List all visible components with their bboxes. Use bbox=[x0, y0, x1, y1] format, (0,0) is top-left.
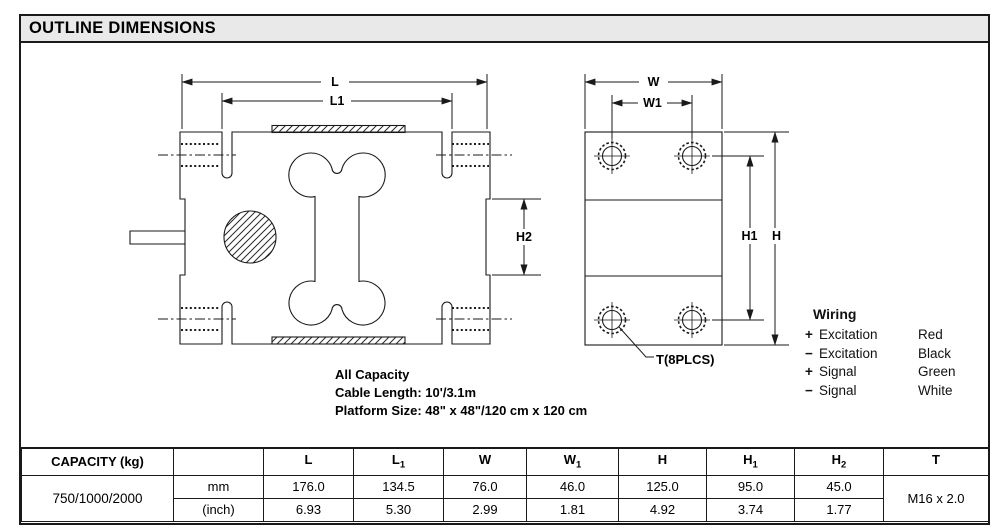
section-title-bar: OUTLINE DIMENSIONS bbox=[21, 16, 988, 43]
wiring-heading: Wiring bbox=[813, 306, 956, 322]
t-callout-leader bbox=[619, 327, 654, 357]
value-cell: 134.5 bbox=[354, 475, 444, 498]
dim-label-h2: H2 bbox=[510, 229, 538, 245]
table-row-mm: 750/1000/2000 mm 176.0 134.5 76.0 46.0 1… bbox=[22, 475, 989, 498]
section-title: OUTLINE DIMENSIONS bbox=[29, 19, 216, 38]
dim-label-l1: L1 bbox=[323, 93, 351, 109]
wiring-label: Signal bbox=[819, 382, 918, 401]
value-cell: 5.30 bbox=[354, 498, 444, 521]
capacity-value-cell: 750/1000/2000 bbox=[22, 475, 174, 521]
value-cell: 4.92 bbox=[619, 498, 707, 521]
datasheet-panel: OUTLINE DIMENSIONS bbox=[19, 14, 990, 525]
value-cell: 125.0 bbox=[619, 475, 707, 498]
value-cell: 176.0 bbox=[264, 475, 354, 498]
wiring-row: + Excitation Red bbox=[805, 326, 956, 345]
dim-label-w: W bbox=[639, 74, 668, 90]
hole-centerlines bbox=[158, 155, 512, 319]
col-header-l1: L1 bbox=[354, 448, 444, 475]
col-header-h2: H2 bbox=[795, 448, 884, 475]
col-header-unit bbox=[174, 448, 264, 475]
top-view-drawing bbox=[585, 74, 789, 357]
value-cell: 2.99 bbox=[444, 498, 527, 521]
dim-label-h1: H1 bbox=[735, 228, 764, 244]
unit-cell: mm bbox=[174, 475, 264, 498]
wiring-sign: + bbox=[805, 363, 819, 382]
wiring-legend: Wiring + Excitation Red − Excitation Bla… bbox=[805, 306, 956, 400]
note-line: Platform Size: 48" x 48"/120 cm x 120 cm bbox=[335, 402, 587, 420]
outline-drawing-area: L L1 W W1 H2 H1 H T(8PLCS) All Capacity … bbox=[21, 43, 988, 447]
wiring-sign: − bbox=[805, 345, 819, 364]
value-cell: 76.0 bbox=[444, 475, 527, 498]
thread-size-cell: M16 x 2.0 bbox=[884, 475, 989, 521]
table-header-row: CAPACITY (kg) L L1 W W1 H H1 H2 T bbox=[22, 448, 989, 475]
wiring-sign: + bbox=[805, 326, 819, 345]
col-header-h: H bbox=[619, 448, 707, 475]
value-cell: 46.0 bbox=[527, 475, 619, 498]
mounting-hole bbox=[594, 138, 630, 174]
col-header-w1: W1 bbox=[527, 448, 619, 475]
dim-label-l: L bbox=[321, 74, 349, 90]
value-cell: 1.81 bbox=[527, 498, 619, 521]
wiring-row: + Signal Green bbox=[805, 363, 956, 382]
bottom-load-pad bbox=[272, 337, 405, 344]
unit-cell: (inch) bbox=[174, 498, 264, 521]
top-load-pad bbox=[272, 126, 405, 133]
dim-label-w1: W1 bbox=[638, 95, 667, 111]
value-cell: 6.93 bbox=[264, 498, 354, 521]
col-header-l: L bbox=[264, 448, 354, 475]
wiring-sign: − bbox=[805, 382, 819, 401]
value-cell: 1.77 bbox=[795, 498, 884, 521]
wiring-label: Signal bbox=[819, 363, 918, 382]
wiring-row: − Excitation Black bbox=[805, 345, 956, 364]
wiring-color: White bbox=[918, 382, 953, 401]
mounting-holes bbox=[594, 138, 710, 338]
col-header-t: T bbox=[884, 448, 989, 475]
dimension-table: CAPACITY (kg) L L1 W W1 H H1 H2 T 750/10… bbox=[21, 447, 989, 522]
capacity-notes: All Capacity Cable Length: 10'/3.1m Plat… bbox=[335, 366, 587, 420]
wiring-row: − Signal White bbox=[805, 382, 956, 401]
col-header-capacity: CAPACITY (kg) bbox=[22, 448, 174, 475]
value-cell: 3.74 bbox=[707, 498, 795, 521]
value-cell: 45.0 bbox=[795, 475, 884, 498]
note-line: All Capacity bbox=[335, 366, 587, 384]
wiring-label: Excitation bbox=[819, 326, 918, 345]
note-line: Cable Length: 10'/3.1m bbox=[335, 384, 587, 402]
wiring-color: Black bbox=[918, 345, 951, 364]
hatched-circle bbox=[224, 211, 276, 263]
col-header-w: W bbox=[444, 448, 527, 475]
value-cell: 95.0 bbox=[707, 475, 795, 498]
wiring-label: Excitation bbox=[819, 345, 918, 364]
side-view-drawing bbox=[130, 74, 541, 344]
top-view-section-lines bbox=[585, 200, 722, 276]
flexure-cutout bbox=[289, 153, 385, 325]
mounting-hole bbox=[674, 302, 710, 338]
wiring-color: Green bbox=[918, 363, 956, 382]
mounting-hole bbox=[674, 138, 710, 174]
dim-label-h: H bbox=[764, 228, 789, 244]
col-header-h1: H1 bbox=[707, 448, 795, 475]
cable-stub bbox=[130, 231, 185, 244]
t-callout-label: T(8PLCS) bbox=[656, 352, 715, 367]
wiring-color: Red bbox=[918, 326, 943, 345]
